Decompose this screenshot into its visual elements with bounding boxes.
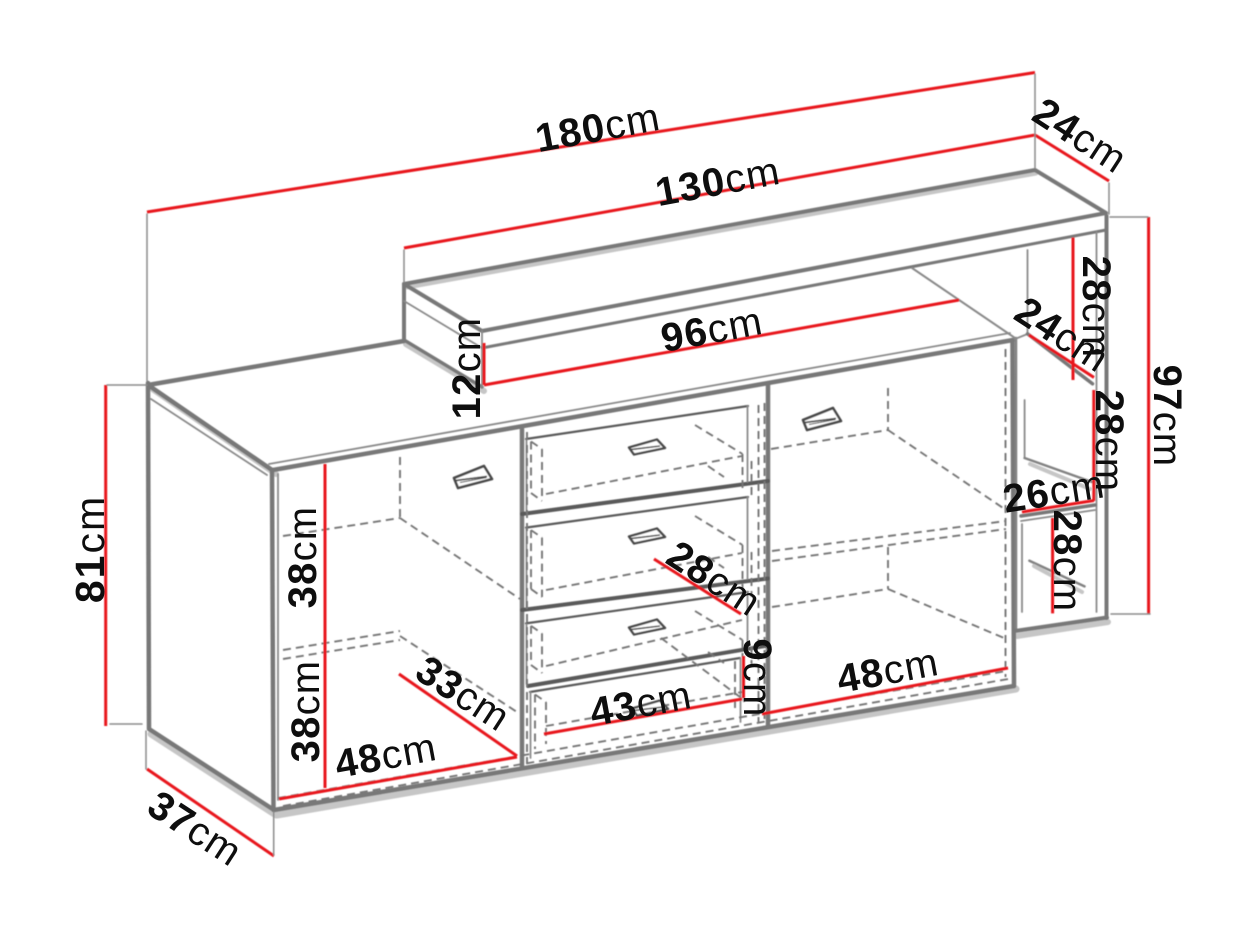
svg-text:28cm: 28cm [1045, 510, 1089, 613]
svg-text:38cm: 38cm [281, 506, 325, 609]
svg-text:97cm: 97cm [1145, 365, 1189, 468]
svg-text:81cm: 81cm [67, 495, 113, 603]
svg-text:9cm: 9cm [735, 638, 779, 717]
svg-text:12cm: 12cm [445, 317, 489, 420]
svg-text:38cm: 38cm [284, 660, 328, 763]
